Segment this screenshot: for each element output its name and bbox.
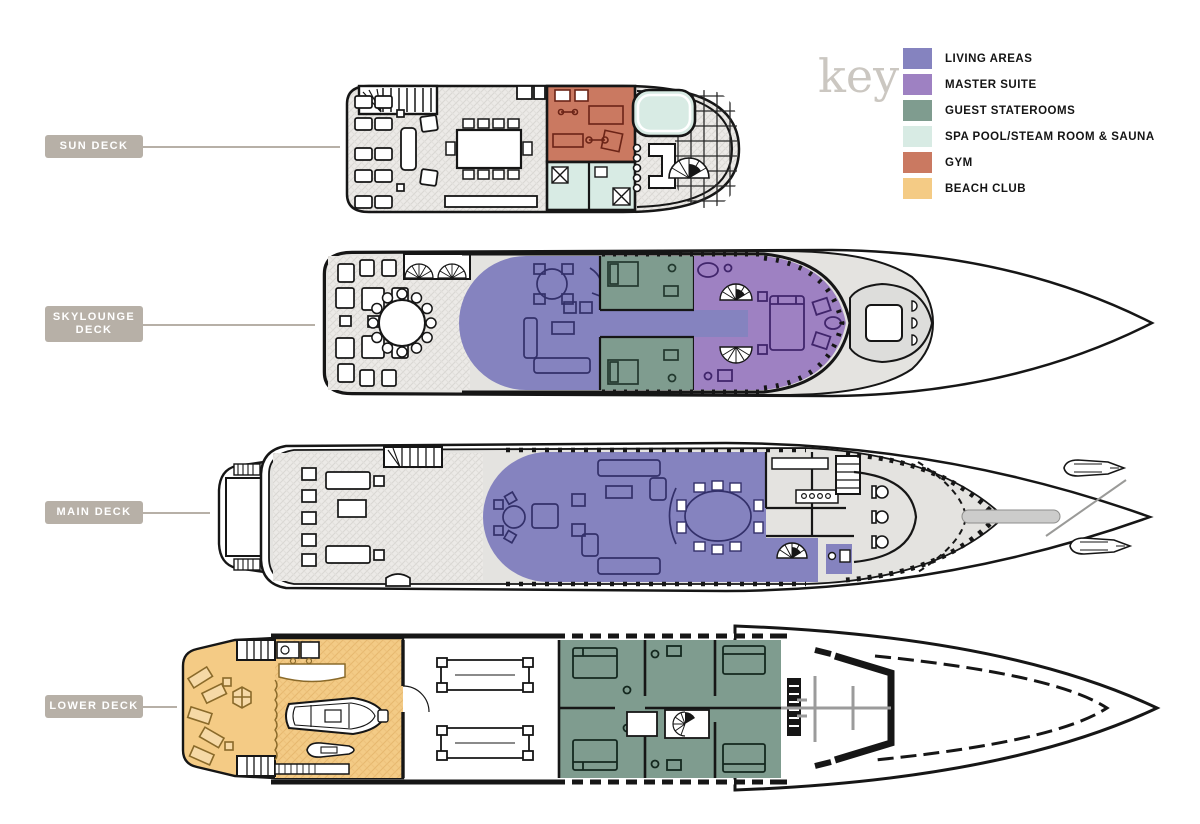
aft-stairs [404, 254, 470, 279]
living-areas-swatch [903, 48, 932, 69]
sun-deck-plan [337, 82, 747, 218]
engine-room [403, 640, 559, 778]
spa-pool [633, 90, 695, 136]
legend-item: MASTER SUITE [903, 74, 1155, 95]
guest-staterooms-swatch [903, 100, 932, 121]
lower-deck-plan [175, 616, 1167, 802]
legend-label: LIVING AREAS [945, 53, 1032, 65]
legend-label: SPA POOL/STEAM ROOM & SAUNA [945, 131, 1155, 143]
main-deck-plan [206, 438, 1158, 598]
deck-label-lower-deck: LOWER DECK [45, 695, 143, 718]
legend-item: LIVING AREAS [903, 48, 1155, 69]
garage-jet-ski [307, 743, 354, 757]
beach-club-swatch [903, 178, 932, 199]
legend-rows: LIVING AREAS MASTER SUITE GUEST STATEROO… [903, 48, 1155, 199]
key-title: key [818, 56, 899, 96]
tender-boat [286, 698, 388, 734]
lower-guest-staterooms [559, 640, 781, 778]
legend-item: GYM [903, 152, 1155, 173]
spa-swatch [903, 126, 932, 147]
connector-line [143, 512, 210, 514]
master-suite-swatch [903, 74, 932, 95]
deck-label-sun-deck: SUN DECK [45, 135, 143, 158]
stateroom-spiral-stair [665, 710, 709, 738]
bar-counter [445, 196, 537, 207]
connector-line [143, 146, 340, 148]
deck-label-main-deck: MAIN DECK [45, 501, 143, 524]
connector-line [143, 706, 177, 708]
skylounge-deck-plan [312, 246, 1158, 402]
legend-label: GYM [945, 157, 973, 169]
aft-stairs [384, 447, 442, 467]
gym-swatch [903, 152, 932, 173]
connector-line [143, 324, 315, 326]
legend-label: BEACH CLUB [945, 183, 1026, 195]
deck-label-skylounge-deck: SKYLOUNGE DECK [45, 306, 143, 342]
legend-label: MASTER SUITE [945, 79, 1037, 91]
legend-item: BEACH CLUB [903, 178, 1155, 199]
legend-item: GUEST STATEROOMS [903, 100, 1155, 121]
steam-room-sauna [547, 162, 635, 210]
legend-label: GUEST STATEROOMS [945, 105, 1075, 117]
legend-item: SPA POOL/STEAM ROOM & SAUNA [903, 126, 1155, 147]
stateroom-lobby [627, 712, 657, 736]
swim-platform [219, 462, 264, 572]
